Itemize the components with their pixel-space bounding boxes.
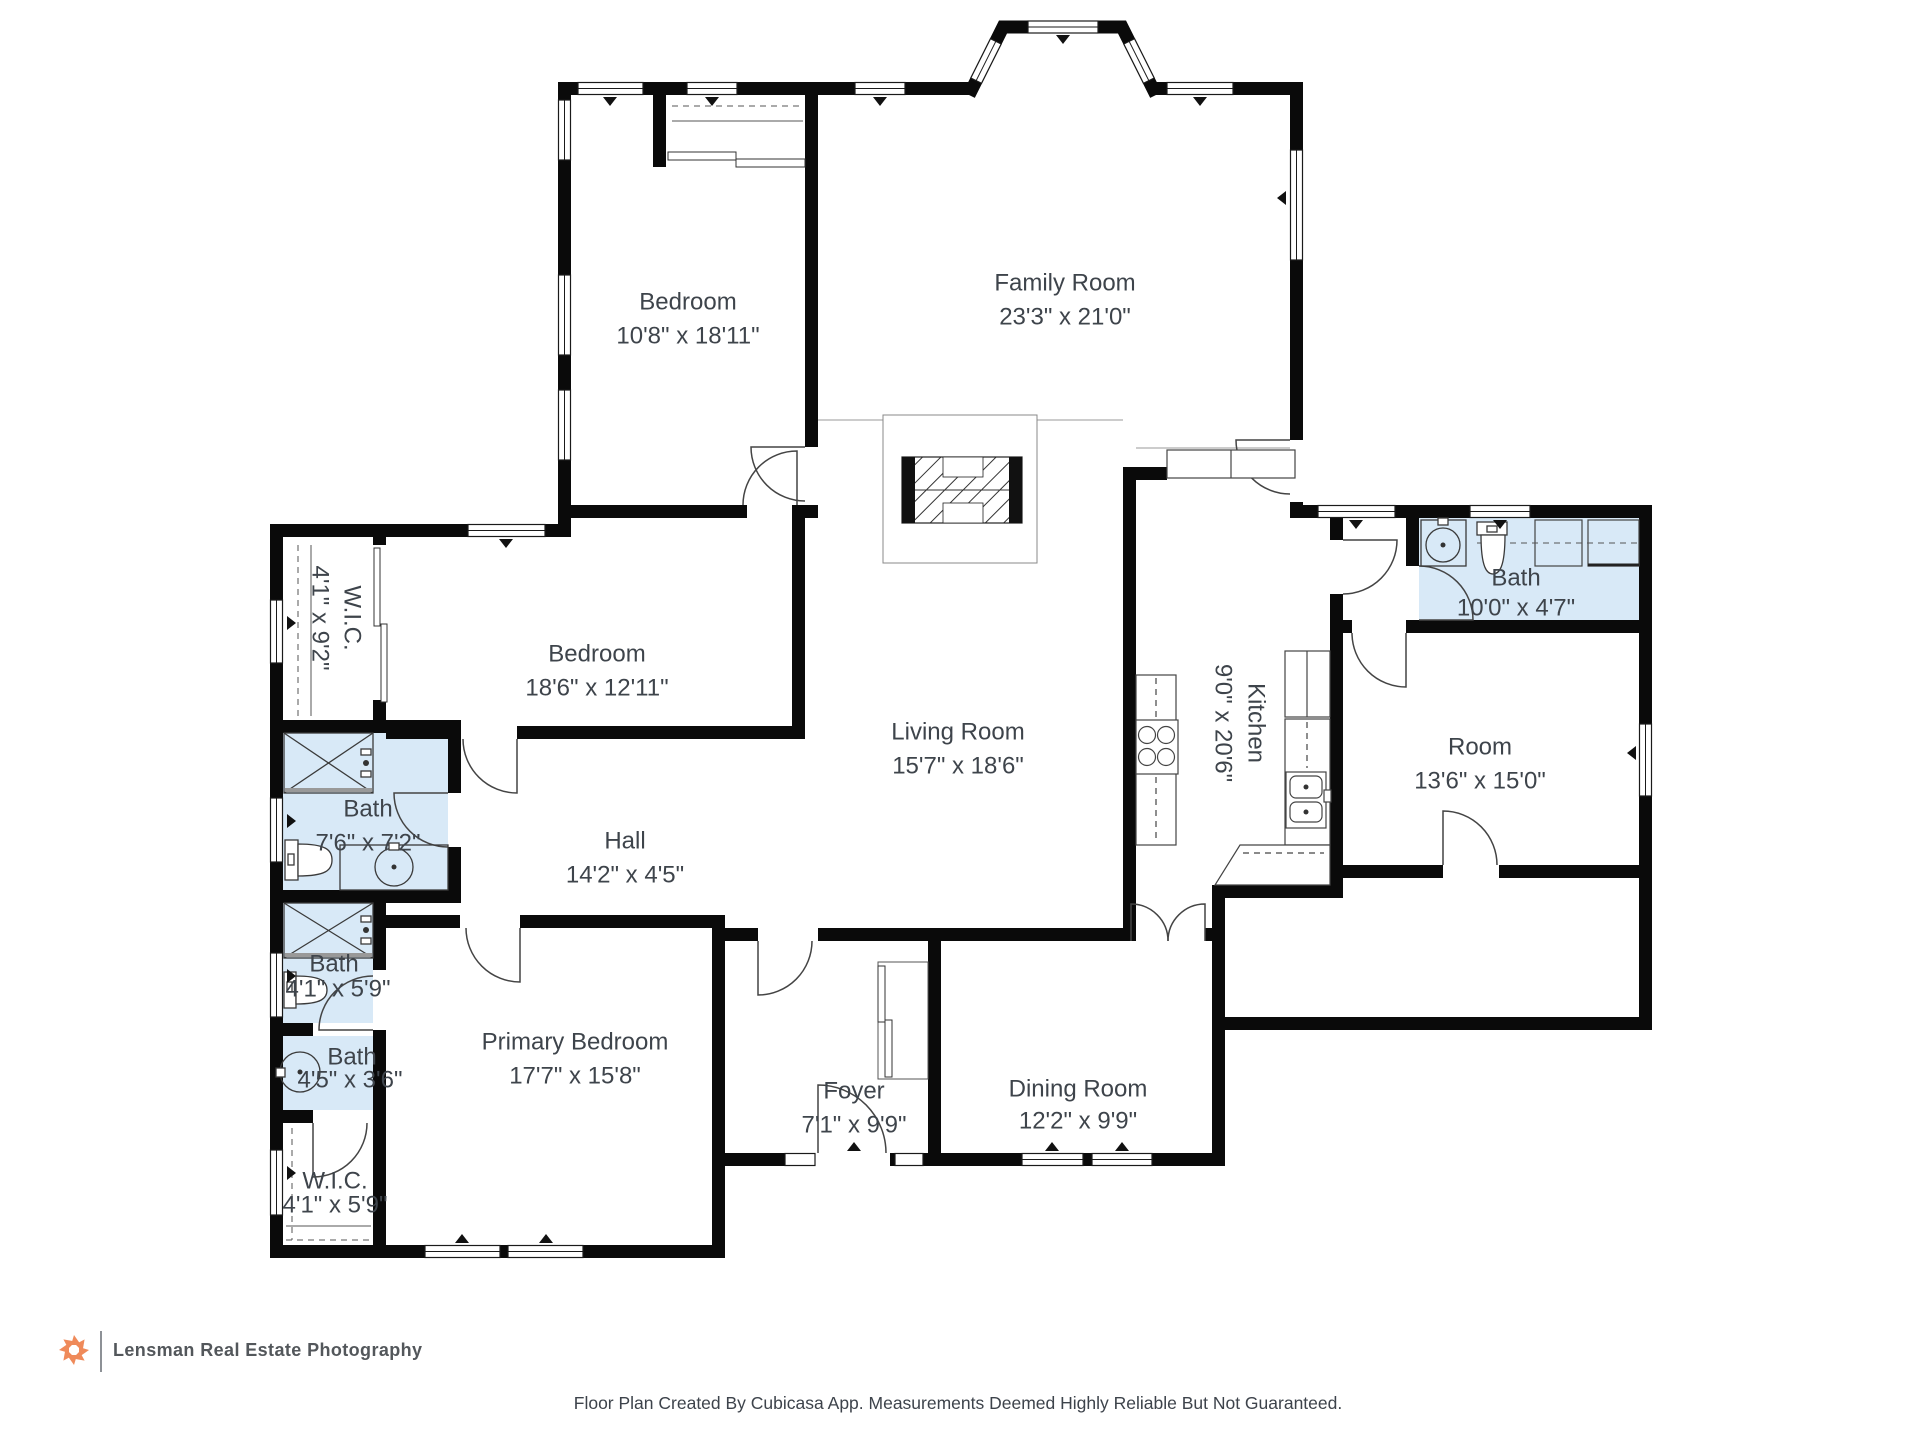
dims-wic-lower: 4'1" x 5'9": [283, 1192, 388, 1219]
label-wic-upper: W.I.C.: [339, 585, 366, 650]
dims-living-room: 15'7" x 18'6": [892, 753, 1024, 780]
dims-kitchen: 9'0" x 20'6": [1210, 664, 1237, 782]
dims-bedroom-mid: 18'6" x 12'11": [525, 675, 668, 702]
label-hall: Hall: [604, 828, 645, 855]
open-boundary-lines: [818, 420, 1290, 448]
dims-family-room: 23'3" x 21'0": [999, 304, 1131, 331]
floor-plan-canvas: Bedroom 10'8" x 18'11" Family Room 23'3"…: [0, 0, 1920, 1440]
dims-bath-main: 7'6" x 7'2": [316, 830, 421, 857]
footer: Lensman Real Estate Photography Floor Pl…: [58, 1331, 1342, 1413]
logo-text: Lensman Real Estate Photography: [113, 1340, 422, 1360]
windows: [271, 83, 1652, 1258]
closets: [286, 106, 1639, 1240]
label-bedroom-mid: Bedroom: [548, 641, 645, 668]
label-wic-lower: W.I.C.: [302, 1168, 367, 1195]
dims-dining-room: 12'2" x 9'9": [1019, 1108, 1137, 1135]
opening-markers: [287, 35, 1636, 1243]
dims-hall: 14'2" x 4'5": [566, 862, 684, 889]
camera-aperture-icon: [58, 1334, 89, 1365]
label-kitchen: Kitchen: [1243, 683, 1270, 763]
walls: [270, 82, 1652, 1258]
label-bath-main: Bath: [343, 796, 392, 823]
label-living-room: Living Room: [891, 719, 1024, 746]
label-room-right: Room: [1448, 734, 1512, 761]
bay-window: [969, 21, 1156, 95]
label-bath-right: Bath: [1491, 565, 1540, 592]
dims-wic-upper: 4'1" x 9'2": [307, 566, 334, 671]
window-mullions: [277, 89, 1646, 1252]
label-dining-room: Dining Room: [1009, 1076, 1148, 1103]
fireplace: [883, 415, 1037, 563]
label-foyer: Foyer: [823, 1078, 884, 1105]
disclaimer-text: Floor Plan Created By Cubicasa App. Meas…: [574, 1393, 1342, 1413]
label-bedroom-top: Bedroom: [639, 289, 736, 316]
label-family-room: Family Room: [994, 270, 1135, 297]
label-primary-bedroom: Primary Bedroom: [482, 1029, 669, 1056]
dims-primary-bedroom: 17'7" x 15'8": [509, 1063, 641, 1090]
dims-foyer: 7'1" x 9'9": [802, 1112, 907, 1139]
label-bath-small: Bath: [309, 951, 358, 978]
dims-bath-small: 4'1" x 5'9": [286, 976, 391, 1003]
dims-room-right: 13'6" x 15'0": [1414, 768, 1546, 795]
dims-bath-vanity: 4'5" x 3'6": [298, 1067, 403, 1094]
dims-bath-right: 10'0" x 4'7": [1457, 595, 1575, 622]
dims-bedroom-top: 10'8" x 18'11": [616, 323, 759, 350]
floor-plan-page: Bedroom 10'8" x 18'11" Family Room 23'3"…: [0, 0, 1920, 1440]
